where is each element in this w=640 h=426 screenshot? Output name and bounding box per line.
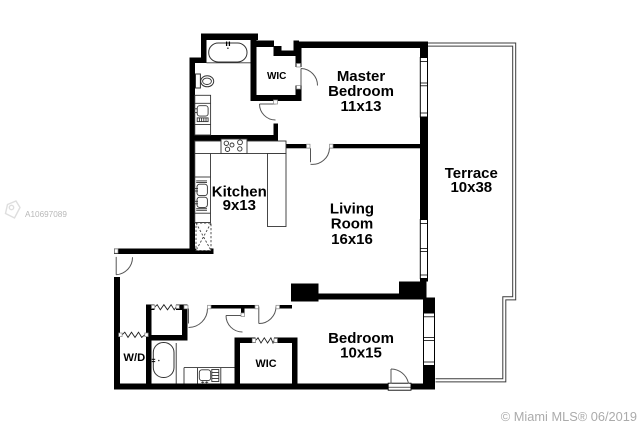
svg-text:10x15: 10x15 xyxy=(340,345,382,362)
svg-text:WIC: WIC xyxy=(256,358,277,370)
svg-text:A10697089: A10697089 xyxy=(25,210,67,219)
svg-text:11x13: 11x13 xyxy=(341,98,382,115)
svg-text:W/D: W/D xyxy=(123,352,145,364)
svg-text:10x38: 10x38 xyxy=(450,179,492,196)
svg-text:16x16: 16x16 xyxy=(331,231,373,248)
svg-text:WIC: WIC xyxy=(267,71,286,82)
svg-text:9x13: 9x13 xyxy=(223,197,256,214)
svg-text:© Miami MLS® 06/2019: © Miami MLS® 06/2019 xyxy=(501,409,637,424)
